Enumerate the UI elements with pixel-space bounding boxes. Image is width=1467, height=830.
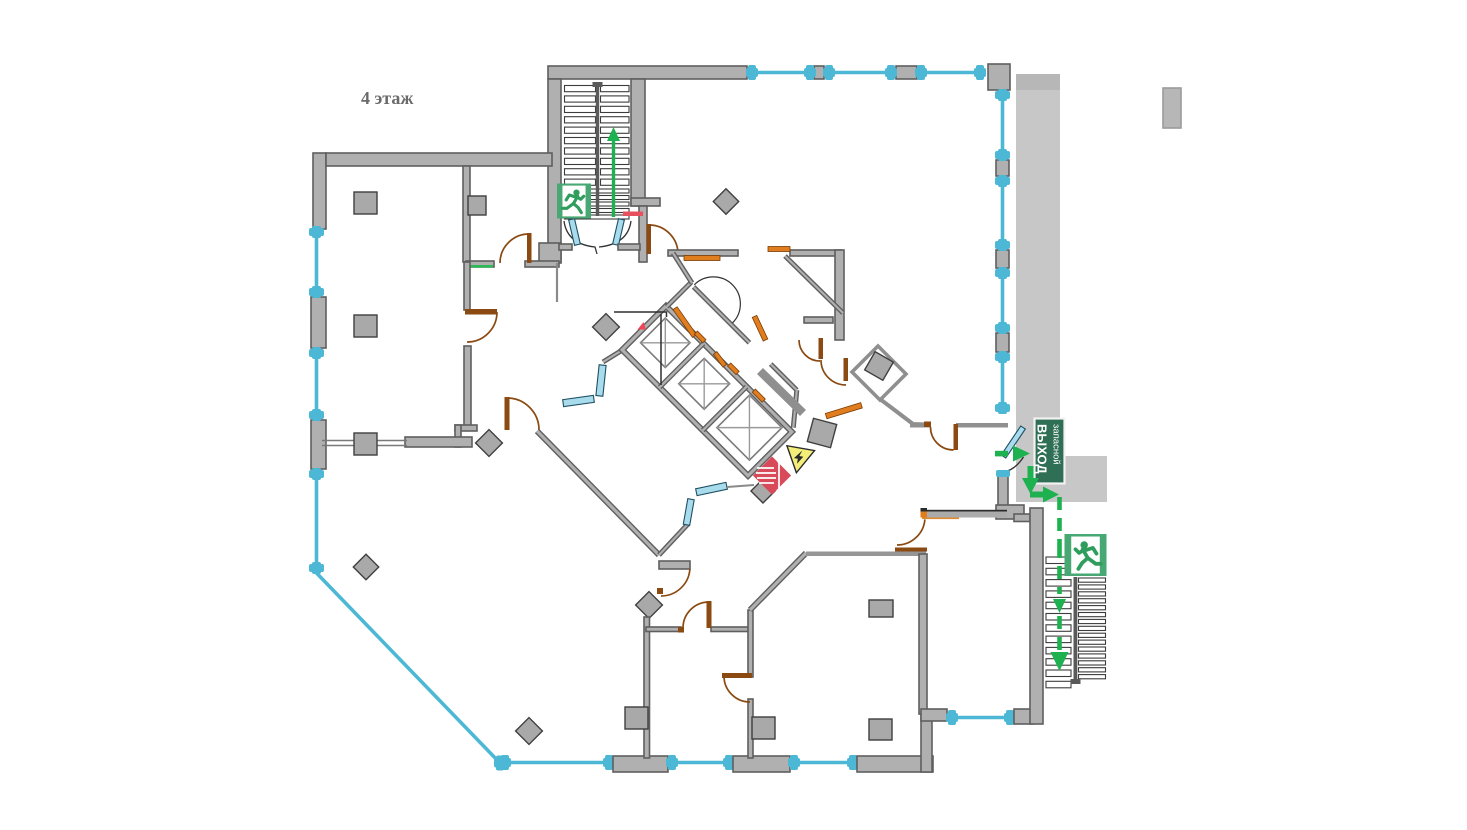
svg-text:ВЫХОД: ВЫХОД bbox=[1035, 424, 1050, 474]
svg-text:4 этаж: 4 этаж bbox=[361, 88, 414, 108]
svg-text:запасной: запасной bbox=[1051, 424, 1062, 465]
